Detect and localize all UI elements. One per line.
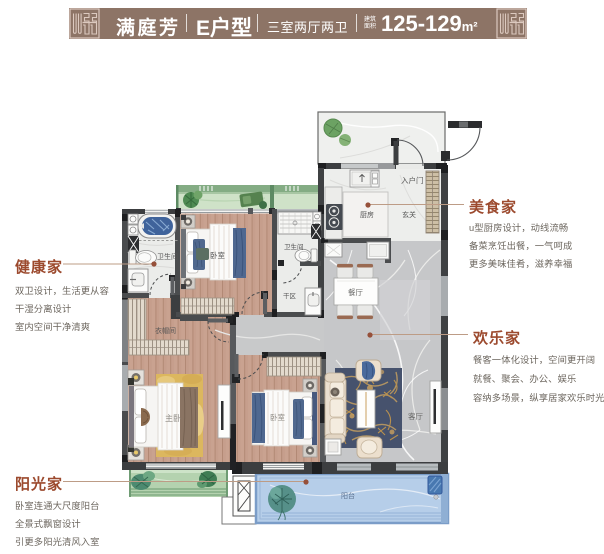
svg-text:衣帽间: 衣帽间 [155,326,176,335]
svg-text:入户门: 入户门 [401,175,424,185]
svg-text:卫生间: 卫生间 [157,252,178,261]
svg-text:餐厅: 餐厅 [348,288,363,297]
svg-text:卧室: 卧室 [270,412,285,422]
svg-text:主卧: 主卧 [165,413,181,423]
svg-text:玄关: 玄关 [402,210,416,219]
svg-text:厨房: 厨房 [360,210,374,219]
svg-text:客厅: 客厅 [408,411,423,421]
svg-text:卫生间: 卫生间 [284,242,304,251]
svg-text:阳台: 阳台 [341,491,355,500]
svg-text:干区: 干区 [283,292,297,300]
svg-text:卧室: 卧室 [210,250,225,260]
